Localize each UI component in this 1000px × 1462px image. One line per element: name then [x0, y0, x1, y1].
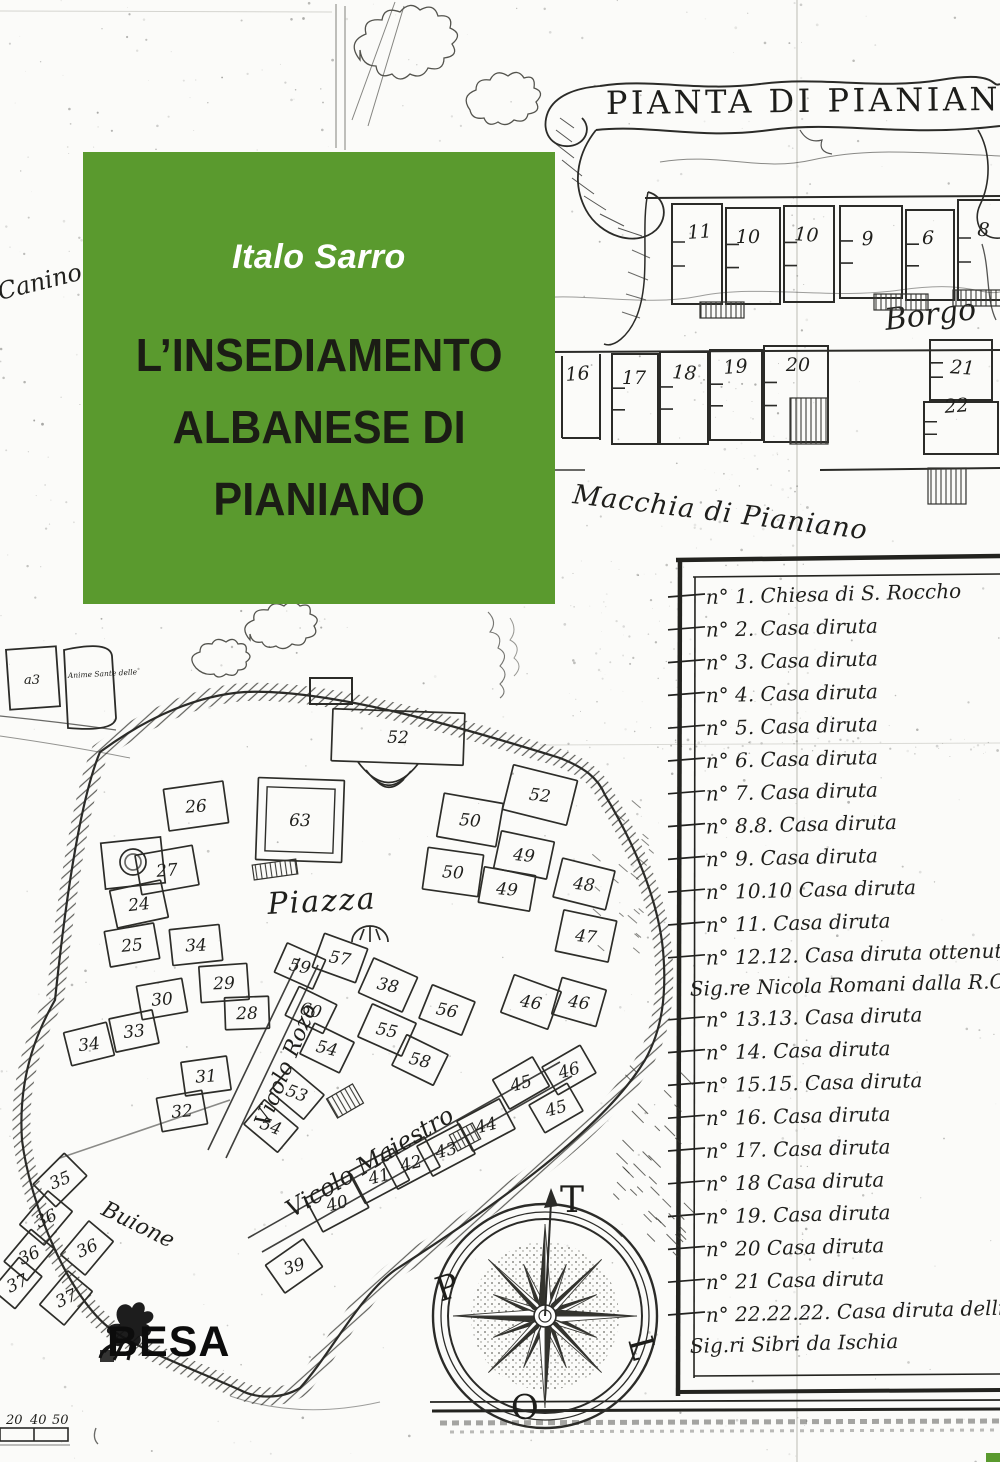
cliff-stroke — [649, 1155, 661, 1167]
cliff-stroke — [592, 854, 600, 861]
borgo-room-number: 10 — [794, 223, 820, 247]
borgo-room-number: 8 — [977, 219, 991, 242]
buione-label: Buione — [96, 1196, 178, 1253]
corner-green-chip — [986, 1453, 1000, 1462]
cliff-stroke — [651, 1187, 660, 1196]
town-building-number: 33 — [122, 1021, 146, 1043]
legend-tick — [668, 856, 705, 859]
town-building-number: 52 — [387, 728, 409, 748]
besa-wordmark: BESA — [107, 1318, 230, 1367]
legend-tick — [668, 889, 705, 892]
borgo-room-number: 18 — [672, 361, 698, 385]
town-building-number: 34 — [77, 1034, 101, 1056]
borgo-room-number: 11 — [687, 220, 713, 244]
title-block: Italo Sarro L’INSEDIAMENTO ALBANESE DI P… — [83, 152, 555, 604]
legend-tick — [668, 1115, 705, 1118]
hut-mark-label: a3 — [24, 673, 40, 688]
town-building-number: 45 — [507, 1072, 534, 1097]
cliff-stroke — [598, 945, 605, 951]
borgo-room-number: 21 — [949, 356, 976, 380]
legend-tick — [668, 1246, 705, 1249]
town-building-number: 45 — [542, 1097, 569, 1122]
cliff-stroke — [623, 1167, 630, 1174]
borgo-room-door — [784, 242, 797, 265]
legend-line: n° 13.13. Casa diruta — [706, 1003, 923, 1032]
legend-tick — [668, 1214, 705, 1217]
cliff-stroke — [649, 1177, 657, 1185]
cliff-stroke — [613, 879, 618, 883]
compass-needle-head — [544, 1188, 558, 1208]
town-building-number: 48 — [571, 874, 596, 897]
compass-north-label: T — [560, 1180, 584, 1221]
legend-line: n° 21 Casa diruta — [706, 1266, 885, 1294]
legend-tick — [668, 758, 705, 761]
book-title: L’INSEDIAMENTO ALBANESE DI PIANIANO — [124, 319, 514, 535]
cliff-stroke — [632, 801, 641, 809]
stairs-hatch — [700, 302, 744, 318]
legend-tick — [668, 1148, 705, 1151]
stairs-hatch — [252, 859, 298, 880]
cliff-stroke — [619, 864, 628, 872]
legend-line: n° 10.10 Casa diruta — [706, 875, 917, 904]
legend-tick — [668, 1017, 705, 1020]
borgo-room-door — [906, 244, 919, 266]
town-building-number: 36 — [73, 1235, 101, 1262]
cliff-stroke — [617, 1153, 628, 1164]
legend-line: n° 14. Casa diruta — [706, 1036, 891, 1065]
borgo-room-door — [924, 422, 937, 434]
borgo-room-door — [672, 242, 685, 266]
legend-line: n° 17. Casa diruta — [706, 1134, 891, 1163]
legend-line: n° 19. Casa diruta — [706, 1200, 891, 1229]
town-building-number: 56 — [434, 999, 459, 1023]
piazza-label: Piazza — [266, 881, 378, 922]
town-building-number: 24 — [126, 894, 151, 916]
cliff-stroke — [593, 909, 601, 916]
legend-line: n° 2. Casa diruta — [706, 614, 879, 642]
legend-line: n° 16. Casa diruta — [706, 1102, 891, 1131]
town-building-number: 58 — [407, 1049, 433, 1073]
legend-line: n° 11. Casa diruta — [706, 908, 891, 937]
cliff-stroke — [643, 834, 649, 839]
town-building-number: 44 — [472, 1114, 499, 1139]
legend-line: Sig.re Nicola Romani dalla R.C.A. — [690, 968, 1000, 1000]
borgo-room-door — [958, 238, 971, 262]
legend-tick — [668, 725, 705, 728]
borgo-room-number: 22 — [943, 394, 970, 418]
borgo-room-number: 9 — [861, 228, 875, 251]
legend-tick — [668, 1279, 705, 1282]
stairs-hatch — [928, 468, 966, 504]
town-building-number: 27 — [154, 860, 178, 882]
borgo-room-door — [612, 388, 625, 410]
town-building-number: 38 — [375, 974, 400, 998]
town-building-number: 29 — [212, 974, 236, 995]
borgo-room — [672, 204, 722, 304]
cliff-stroke — [681, 1073, 693, 1085]
town-building-number: 57 — [327, 947, 352, 970]
anime-sante-label: Anime Sante delle — [67, 667, 138, 680]
borgo-room-door — [660, 387, 673, 409]
legend-line: n° 9. Casa diruta — [706, 843, 879, 871]
legend-tick — [668, 1312, 705, 1315]
legend-tick — [668, 692, 705, 695]
legend-tick — [668, 791, 705, 794]
legend-line: n° 4. Casa diruta — [706, 679, 879, 707]
canino-label: Canino — [0, 258, 85, 306]
town-building-number: 52 — [528, 785, 552, 807]
stairs-hatch — [327, 1084, 364, 1118]
town-building-number: 46 — [566, 991, 591, 1014]
cliff-stroke — [643, 1152, 652, 1161]
legend-tick — [668, 627, 705, 630]
cliff-stroke — [595, 887, 600, 891]
legend-entries: n° 1. Chiesa di S. Rocchon° 2. Casa diru… — [668, 579, 1000, 1358]
cliff-stroke — [642, 839, 649, 845]
town-building-number: 28 — [235, 1004, 258, 1024]
town-building-number: 49 — [511, 845, 536, 867]
borgo-room — [840, 206, 902, 298]
macchia-label: Macchia di Pianiano — [570, 479, 869, 546]
legend-line: n° 6. Casa diruta — [706, 745, 879, 773]
town-building-number: 46 — [517, 991, 543, 1015]
title-line-2: ALBANESE DI — [136, 391, 503, 463]
borgo-room — [784, 206, 834, 302]
town-building-number: 47 — [573, 926, 598, 948]
title-line-1: L’INSEDIAMENTO — [136, 319, 503, 391]
scale-bar-numbers: 204050 — [5, 1413, 69, 1428]
compass-east-label: L — [619, 1332, 663, 1364]
town-building-number: 50 — [458, 810, 481, 832]
town-building-number: 63 — [289, 811, 311, 831]
cliff-stroke — [628, 915, 637, 923]
cliff-stroke — [623, 1140, 634, 1151]
scale-number: 20 — [5, 1413, 23, 1428]
cliff-stroke — [634, 909, 640, 914]
legend-line: n° 20 Casa diruta — [706, 1233, 885, 1261]
cliff-stroke — [639, 909, 644, 913]
scale-number: 50 — [52, 1413, 69, 1428]
borgo-room-number: 20 — [785, 354, 810, 376]
town-building-number: 43 — [432, 1139, 459, 1164]
cliff-stroke — [655, 1126, 660, 1131]
town-building-number: 25 — [119, 935, 143, 957]
book-cover: PIANTA DI PIANIANO 111010968161718192021… — [0, 0, 1000, 1462]
legend-line: n° 12.12. Casa diruta ottenuta dal — [706, 937, 1000, 969]
cliff-stroke — [630, 1189, 637, 1195]
town-building-number: 49 — [494, 879, 518, 901]
cliff-stroke — [656, 1217, 662, 1223]
legend-tick — [668, 824, 705, 827]
cliff-stroke — [638, 1104, 648, 1114]
borgo-room-door — [840, 241, 853, 263]
town-building-number: 55 — [374, 1019, 399, 1043]
borgo-room-door — [930, 363, 943, 377]
borgo-room — [726, 208, 780, 304]
cliff-stroke — [632, 1111, 644, 1123]
legend-line: Sig.ri Sibri da Ischia — [690, 1329, 899, 1358]
cliff-stroke — [648, 1211, 657, 1220]
legend-tick — [668, 922, 705, 925]
legend-line: n° 15.15. Casa diruta — [706, 1068, 923, 1097]
vicolo-maiestro-label: Vicolo Maiestro — [281, 1101, 459, 1223]
cliff-stroke — [664, 1090, 671, 1097]
cliff-stroke — [617, 1182, 626, 1191]
town-building-number: 39 — [281, 1254, 308, 1280]
town-building-number: 50 — [441, 862, 464, 883]
cliff-stroke — [663, 1199, 672, 1208]
town-building-number: 54 — [314, 1037, 340, 1061]
legend-tick — [668, 1082, 705, 1085]
legend-tick — [668, 1181, 705, 1184]
legend-line: n° 5. Casa diruta — [706, 712, 879, 740]
town-building-number: 34 — [185, 935, 208, 956]
borgo-room-number: 16 — [565, 362, 591, 386]
cliff-stroke — [649, 849, 654, 853]
author-name: Italo Sarro — [232, 238, 406, 277]
town-building-number: 30 — [150, 989, 173, 1011]
cliff-stroke — [613, 1194, 619, 1200]
town-building-number: 35 — [47, 1168, 75, 1195]
borgo-room-number: 17 — [622, 367, 647, 389]
legend-tick — [668, 660, 705, 663]
legend-line: n° 22.22.22. Casa diruta delli — [706, 1296, 1000, 1327]
stairs-hatch — [790, 398, 828, 444]
legend-line: n° 7. Casa diruta — [706, 778, 879, 806]
cliff-stroke — [633, 948, 639, 954]
cliff-stroke — [619, 913, 623, 917]
legend-line: n° 18 Casa diruta — [706, 1167, 885, 1195]
publisher-logo: BESA — [90, 1294, 240, 1370]
town-building-number: 26 — [184, 796, 208, 818]
legend-line: n° 8.8. Casa diruta — [706, 810, 898, 839]
legend-line: n° 3. Casa diruta — [706, 646, 879, 674]
legend-tick — [668, 1050, 705, 1053]
title-line-3: PIANIANO — [136, 463, 503, 535]
legend-tick — [668, 955, 705, 958]
borgo-room-number: 19 — [723, 355, 749, 379]
cliff-stroke — [665, 1126, 676, 1136]
legend-line: n° 1. Chiesa di S. Roccho — [706, 579, 962, 609]
scale-number: 40 — [29, 1413, 47, 1428]
borgo-room-number: 10 — [736, 226, 760, 248]
stairs-hatch — [874, 294, 928, 310]
borgo-room-number: 6 — [922, 227, 934, 249]
banner-title: PIANTA DI PIANIANO — [606, 80, 1000, 122]
compass-south-label: O — [509, 1387, 540, 1429]
cliff-stroke — [644, 1214, 652, 1222]
borgo-room — [958, 200, 1000, 300]
legend-tick — [668, 594, 705, 597]
town-building-number: 32 — [170, 1101, 193, 1123]
stairs-hatch — [953, 290, 1000, 306]
cliff-stroke — [634, 1164, 646, 1176]
town-building-number: 31 — [195, 1066, 218, 1087]
cliff-stroke — [647, 1234, 655, 1242]
cliff-stroke — [637, 1187, 643, 1193]
